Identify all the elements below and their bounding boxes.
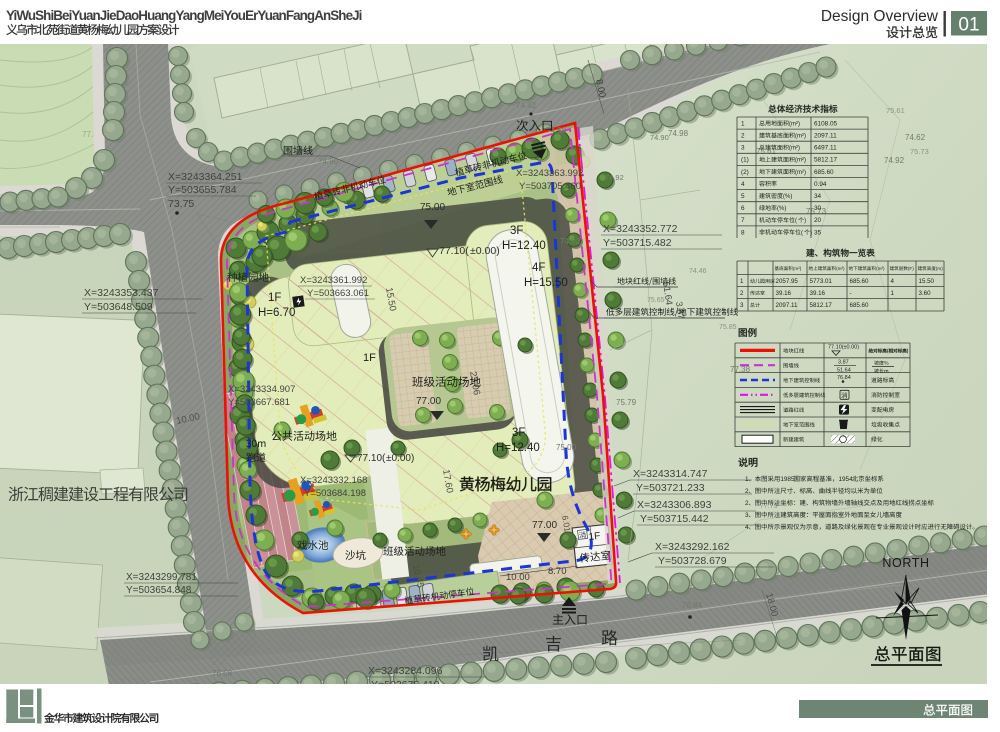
svg-text:-: - [850,290,852,297]
svg-text:(m²): (m²) [789,121,800,127]
svg-text:Design Overview: Design Overview [821,8,939,25]
svg-text:X=3243299.781: X=3243299.781 [126,572,197,583]
svg-text:77.00: 77.00 [532,520,557,531]
svg-text:X=3243334.907: X=3243334.907 [228,384,295,395]
svg-text:(%): (%) [783,194,792,200]
svg-text:Y=503721.233: Y=503721.233 [636,482,705,494]
svg-text:75.00: 75.00 [420,202,445,213]
svg-text:75.65: 75.65 [647,297,665,304]
svg-text:H=6.70: H=6.70 [258,307,295,319]
svg-text:1: 1 [891,290,895,297]
svg-text:X=3243292.162: X=3243292.162 [655,541,730,553]
svg-text:±0.00): ±0.00) [386,453,414,464]
svg-text:(m): (m) [936,266,943,271]
svg-text:6108.05: 6108.05 [814,120,838,127]
svg-text:6: 6 [741,205,745,212]
svg-text:685.60: 685.60 [814,169,834,176]
svg-text:77.00: 77.00 [416,396,441,407]
svg-text:4: 4 [741,181,745,188]
svg-text:±0.00): ±0.00) [844,344,860,350]
svg-text:(m²): (m²) [795,170,806,176]
svg-text:685.60: 685.60 [850,278,869,285]
svg-text:39.16: 39.16 [776,290,792,297]
svg-text:15.50: 15.50 [919,278,935,285]
svg-text:74.42: 74.42 [516,101,537,110]
svg-text:75.61: 75.61 [886,106,905,115]
svg-text:YiWuShiBeiYuanJieDaoHuangYangM: YiWuShiBeiYuanJieDaoHuangYangMeiYouErYua… [6,8,362,23]
svg-text:39.16: 39.16 [810,290,826,297]
svg-text:): ) [810,230,812,236]
svg-text:74.46: 74.46 [689,268,707,275]
svg-text:3: 3 [740,302,744,309]
svg-text:Y=503728.679: Y=503728.679 [658,555,727,567]
svg-text:3F: 3F [510,225,523,237]
svg-text:8: 8 [741,229,745,236]
svg-text:75.79: 75.79 [616,398,637,407]
svg-text:74.92: 74.92 [605,173,624,182]
svg-text:35: 35 [814,229,822,236]
svg-text:1: 1 [741,120,745,127]
svg-text:(m²): (m²) [789,146,800,152]
svg-text:6497.11: 6497.11 [814,145,837,152]
svg-text:75.85: 75.85 [719,324,737,331]
svg-text:74.98: 74.98 [668,129,689,138]
svg-text:2097.11: 2097.11 [776,302,798,309]
svg-text:4: 4 [745,524,749,531]
svg-text:(m²): (m²) [836,266,845,271]
svg-text:5812.17: 5812.17 [814,157,838,164]
svg-text:X=3243353.437: X=3243353.437 [84,287,159,299]
svg-text:(%): (%) [777,206,786,212]
svg-text:51.64: 51.64 [837,368,851,374]
svg-text:2057.95: 2057.95 [776,278,799,285]
svg-text:±0.00): ±0.00) [470,245,500,257]
svg-text:74.92: 74.92 [884,156,905,165]
svg-text:34: 34 [814,193,822,200]
svg-text:7: 7 [741,217,745,224]
svg-text:NORTH: NORTH [882,556,929,570]
svg-text:X=3243332.168: X=3243332.168 [300,475,367,486]
svg-text:1F: 1F [588,531,601,543]
svg-text:30: 30 [814,205,822,212]
svg-text:(: ( [795,218,797,224]
svg-text:1954: 1954 [838,476,853,483]
svg-text:(F): (F) [908,266,914,271]
svg-text:Y=503648.509: Y=503648.509 [84,301,153,313]
svg-text:(: ( [801,230,803,236]
svg-text:1F: 1F [363,352,376,364]
svg-text:X=3243364.251: X=3243364.251 [168,171,243,183]
svg-text:4F: 4F [532,262,545,274]
svg-text:5: 5 [741,193,745,200]
svg-text:(1): (1) [741,157,749,164]
svg-text:77.10(: 77.10( [357,453,386,464]
svg-text:1: 1 [745,476,749,483]
svg-text:76.84: 76.84 [682,601,703,610]
svg-text:X=3243361.992: X=3243361.992 [300,275,367,286]
svg-text:(m²): (m²) [795,134,806,140]
svg-text:76.84: 76.84 [837,375,851,381]
svg-text:1985: 1985 [780,476,795,483]
svg-text:1: 1 [740,278,744,285]
svg-text:Y=503684.198: Y=503684.198 [304,488,366,499]
svg-text:X=3243352.772: X=3243352.772 [603,223,678,235]
svg-text:0.94: 0.94 [814,181,827,188]
svg-text:(2): (2) [741,169,749,176]
svg-text:H=12.40: H=12.40 [496,442,540,454]
svg-text:3: 3 [745,512,749,519]
svg-text:3.87: 3.87 [838,360,849,366]
svg-text:(m²): (m²) [793,266,802,271]
svg-text:77.73: 77.73 [760,503,778,510]
svg-text:1F: 1F [268,292,281,304]
svg-text:3F: 3F [512,427,525,439]
svg-text:Y=503715.442: Y=503715.442 [640,513,709,525]
svg-text:X=3243363.992: X=3243363.992 [516,168,583,179]
svg-text:Y=503655.784: Y=503655.784 [168,184,237,196]
svg-text:2: 2 [745,488,749,495]
svg-text:2097.11: 2097.11 [814,133,837,140]
svg-text:73.75: 73.75 [168,198,194,210]
svg-text:H=15.50: H=15.50 [524,277,568,289]
svg-text:3.60: 3.60 [919,290,932,297]
svg-text:Y=503667.681: Y=503667.681 [228,397,290,408]
svg-text:77.10(: 77.10( [439,245,469,257]
svg-text:(m²): (m²) [876,266,885,271]
svg-text:2: 2 [745,500,749,507]
svg-text:75.73: 75.73 [910,147,929,156]
svg-text:Y=503654.848: Y=503654.848 [126,585,192,596]
svg-text:X=3243306.893: X=3243306.893 [637,499,712,511]
svg-text:4: 4 [891,278,895,285]
svg-text:(m²): (m²) [795,158,806,164]
svg-text:X=3243314.747: X=3243314.747 [633,468,708,480]
svg-text:01: 01 [958,15,979,36]
svg-text:Y=503715.482: Y=503715.482 [603,237,672,249]
svg-text:685.60: 685.60 [850,302,869,309]
svg-text:3: 3 [741,145,745,152]
svg-text:20: 20 [814,217,822,224]
svg-text:74.92: 74.92 [560,237,581,246]
svg-text:5773.01: 5773.01 [810,278,833,285]
svg-text:76.58: 76.58 [212,669,233,678]
svg-text:74.62: 74.62 [905,133,926,142]
svg-text:74.58: 74.58 [546,126,567,135]
svg-text:5812.17: 5812.17 [810,302,833,309]
svg-text:2: 2 [740,290,744,297]
svg-text:77.10(: 77.10( [828,344,844,350]
svg-text:Y=503663.061: Y=503663.061 [307,288,369,299]
svg-text:H=12.40: H=12.40 [502,240,546,252]
svg-text:2: 2 [741,133,745,140]
svg-text:74.90: 74.90 [650,133,669,142]
svg-text:X=3243284.096: X=3243284.096 [368,665,443,677]
svg-text:75.00: 75.00 [556,443,577,452]
svg-text:Y=503705.460: Y=503705.460 [519,181,581,192]
svg-text:): ) [804,218,806,224]
